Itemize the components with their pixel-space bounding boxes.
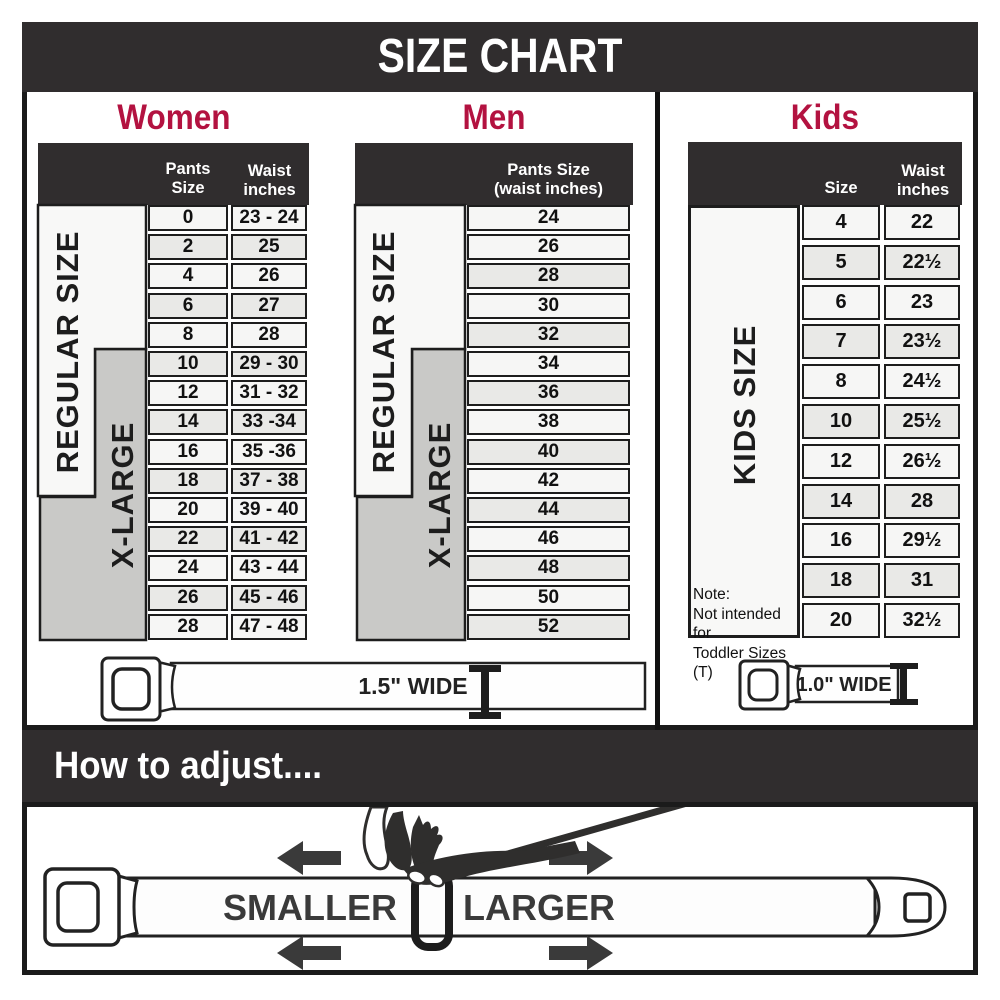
adult-buckle-window	[113, 669, 149, 709]
size-cell: 6	[148, 293, 228, 319]
size-cell: 29 - 30	[231, 351, 307, 377]
how-to-adjust-title: How to adjust....	[22, 730, 978, 802]
size-cell: 8	[148, 322, 228, 348]
table-row: 426	[148, 263, 309, 289]
table-row: 2847 - 48	[148, 614, 309, 640]
table-row: 1025½	[802, 404, 962, 439]
men-xlarge-label: X-LARGE	[422, 380, 454, 610]
men-title: Men	[355, 98, 633, 138]
table-row: 50	[467, 585, 630, 611]
size-cell: 26	[148, 585, 228, 611]
size-cell: 28	[148, 614, 228, 640]
size-cell: 14	[148, 409, 228, 435]
size-cell: 23 - 24	[231, 205, 307, 231]
table-row: 627	[148, 293, 309, 319]
kids-table: 422522½623723½824½1025½1226½14281629½183…	[802, 205, 962, 638]
table-row: 40	[467, 439, 630, 465]
kids-title: Kids	[688, 98, 962, 138]
size-cell: 35 -36	[231, 439, 307, 465]
size-cell: 18	[148, 468, 228, 494]
table-row: 1635 -36	[148, 439, 309, 465]
table-row: 522½	[802, 245, 962, 280]
size-cell: 4	[802, 205, 880, 240]
size-cell: 39 - 40	[231, 497, 307, 523]
size-cell: 23½	[884, 324, 960, 359]
belt-tip-slot	[905, 894, 930, 921]
table-row: 52	[467, 614, 630, 640]
size-cell: 45 - 46	[231, 585, 307, 611]
women-col2-header: Waist inches	[230, 162, 309, 200]
size-cell: 12	[802, 444, 880, 479]
size-cell: 31 - 32	[231, 380, 307, 406]
size-cell: 8	[802, 364, 880, 399]
size-cell: 28	[884, 484, 960, 519]
size-cell: 33 -34	[231, 409, 307, 435]
men-table: 242628303234363840424446485052	[467, 205, 630, 640]
size-chart-page: SIZE CHART Women Men Kids Pants Size Wai…	[0, 0, 1000, 1000]
men-col-header: Pants Size (waist inches)	[467, 161, 630, 199]
kids-col1-header: Size	[802, 179, 880, 198]
size-cell: 41 - 42	[231, 526, 307, 552]
size-cell: 2	[148, 234, 228, 260]
size-cell: 24	[148, 555, 228, 581]
size-cell: 26½	[884, 444, 960, 479]
size-cell: 24	[467, 205, 630, 231]
kids-col2-header: Waist inches	[884, 162, 962, 200]
women-xlarge-label: X-LARGE	[105, 380, 137, 610]
size-cell: 26	[231, 263, 307, 289]
size-cell: 29½	[884, 523, 960, 558]
size-cell: 40	[467, 439, 630, 465]
size-cell: 46	[467, 526, 630, 552]
table-row: 2645 - 46	[148, 585, 309, 611]
adult-belt-width-label: 1.5" WIDE	[358, 673, 467, 699]
size-cell: 22	[884, 205, 960, 240]
size-cell: 6	[802, 285, 880, 320]
kids-size-label: KIDS SIZE	[727, 255, 761, 555]
table-row: 30	[467, 293, 630, 319]
size-cell: 50	[467, 585, 630, 611]
table-row: 24	[467, 205, 630, 231]
size-cell: 5	[802, 245, 880, 280]
size-cell: 32½	[884, 603, 960, 638]
size-cell: 28	[467, 263, 630, 289]
table-row: 2032½	[802, 603, 962, 638]
table-row: 1629½	[802, 523, 962, 558]
table-row: 023 - 24	[148, 205, 309, 231]
table-row: 38	[467, 409, 630, 435]
adjust-illustration-box: SMALLER LARGER	[22, 802, 978, 975]
size-cell: 12	[148, 380, 228, 406]
size-cell: 14	[802, 484, 880, 519]
table-row: 723½	[802, 324, 962, 359]
size-cell: 25	[231, 234, 307, 260]
table-row: 48	[467, 555, 630, 581]
size-cell: 10	[802, 404, 880, 439]
table-row: 225	[148, 234, 309, 260]
page-title: SIZE CHART	[22, 22, 978, 92]
size-cell: 25½	[884, 404, 960, 439]
table-row: 32	[467, 322, 630, 348]
table-row: 422	[802, 205, 962, 240]
size-cell: 43 - 44	[231, 555, 307, 581]
table-row: 34	[467, 351, 630, 377]
women-regular-size-label: REGULAR SIZE	[50, 207, 82, 497]
size-cell: 44	[467, 497, 630, 523]
size-cell: 0	[148, 205, 228, 231]
table-row: 1226½	[802, 444, 962, 479]
size-cell: 34	[467, 351, 630, 377]
table-row: 2039 - 40	[148, 497, 309, 523]
size-cell: 22	[148, 526, 228, 552]
kids-buckle-window	[749, 670, 777, 700]
table-row: 1831	[802, 563, 962, 598]
adult-belt-illustration: 1.5" WIDE	[85, 650, 660, 728]
size-cell: 4	[148, 263, 228, 289]
size-cell: 23	[884, 285, 960, 320]
size-cell: 31	[884, 563, 960, 598]
women-title: Women	[38, 98, 309, 138]
size-cell: 10	[148, 351, 228, 377]
size-cell: 52	[467, 614, 630, 640]
size-cell: 22½	[884, 245, 960, 280]
kids-table-header: Size Waist inches	[688, 142, 962, 205]
smaller-label: SMALLER	[223, 887, 397, 928]
larger-label: LARGER	[463, 887, 615, 928]
kids-note-title: Note:	[693, 585, 799, 605]
size-cell: 32	[467, 322, 630, 348]
table-row: 2443 - 44	[148, 555, 309, 581]
size-cell: 26	[467, 234, 630, 260]
table-row: 26	[467, 234, 630, 260]
table-row: 44	[467, 497, 630, 523]
size-cell: 27	[231, 293, 307, 319]
size-cell: 37 - 38	[231, 468, 307, 494]
kids-belt-width-label: 1.0" WIDE	[796, 674, 891, 696]
size-cell: 16	[802, 523, 880, 558]
adjust-illustration: SMALLER LARGER	[27, 807, 973, 970]
table-row: 36	[467, 380, 630, 406]
size-cell: 20	[148, 497, 228, 523]
size-cell: 48	[467, 555, 630, 581]
section-divider	[655, 92, 660, 730]
size-cell: 47 - 48	[231, 614, 307, 640]
size-cell: 24½	[884, 364, 960, 399]
table-row: 1433 -34	[148, 409, 309, 435]
size-chart-header: SIZE CHART	[22, 22, 978, 92]
table-row: 623	[802, 285, 962, 320]
table-row: 824½	[802, 364, 962, 399]
adjust-buckle-window	[58, 883, 98, 931]
size-cell: 7	[802, 324, 880, 359]
table-row: 1231 - 32	[148, 380, 309, 406]
men-regular-size-label: REGULAR SIZE	[366, 207, 398, 497]
size-cell: 30	[467, 293, 630, 319]
size-cell: 42	[467, 468, 630, 494]
arrow-left-icon	[277, 936, 341, 970]
how-to-adjust-header: How to adjust....	[22, 730, 978, 802]
women-table: 023 - 242254266278281029 - 301231 - 3214…	[148, 205, 309, 640]
size-cell: 18	[802, 563, 880, 598]
table-row: 828	[148, 322, 309, 348]
women-table-header: Pants Size Waist inches	[38, 143, 309, 205]
women-col1-header: Pants Size	[148, 160, 228, 198]
size-cell: 36	[467, 380, 630, 406]
table-row: 1837 - 38	[148, 468, 309, 494]
table-row: 1428	[802, 484, 962, 519]
kids-belt-illustration: 1.0" WIDE	[728, 656, 938, 716]
hand-pull-icon	[364, 807, 580, 889]
size-cell: 28	[231, 322, 307, 348]
men-table-header: Pants Size (waist inches)	[355, 143, 633, 205]
size-cell: 38	[467, 409, 630, 435]
table-row: 46	[467, 526, 630, 552]
table-row: 42	[467, 468, 630, 494]
arrow-left-icon	[277, 841, 341, 875]
arrow-right-icon	[549, 936, 613, 970]
size-cell: 16	[148, 439, 228, 465]
table-row: 1029 - 30	[148, 351, 309, 377]
table-row: 28	[467, 263, 630, 289]
table-row: 2241 - 42	[148, 526, 309, 552]
size-cell: 20	[802, 603, 880, 638]
